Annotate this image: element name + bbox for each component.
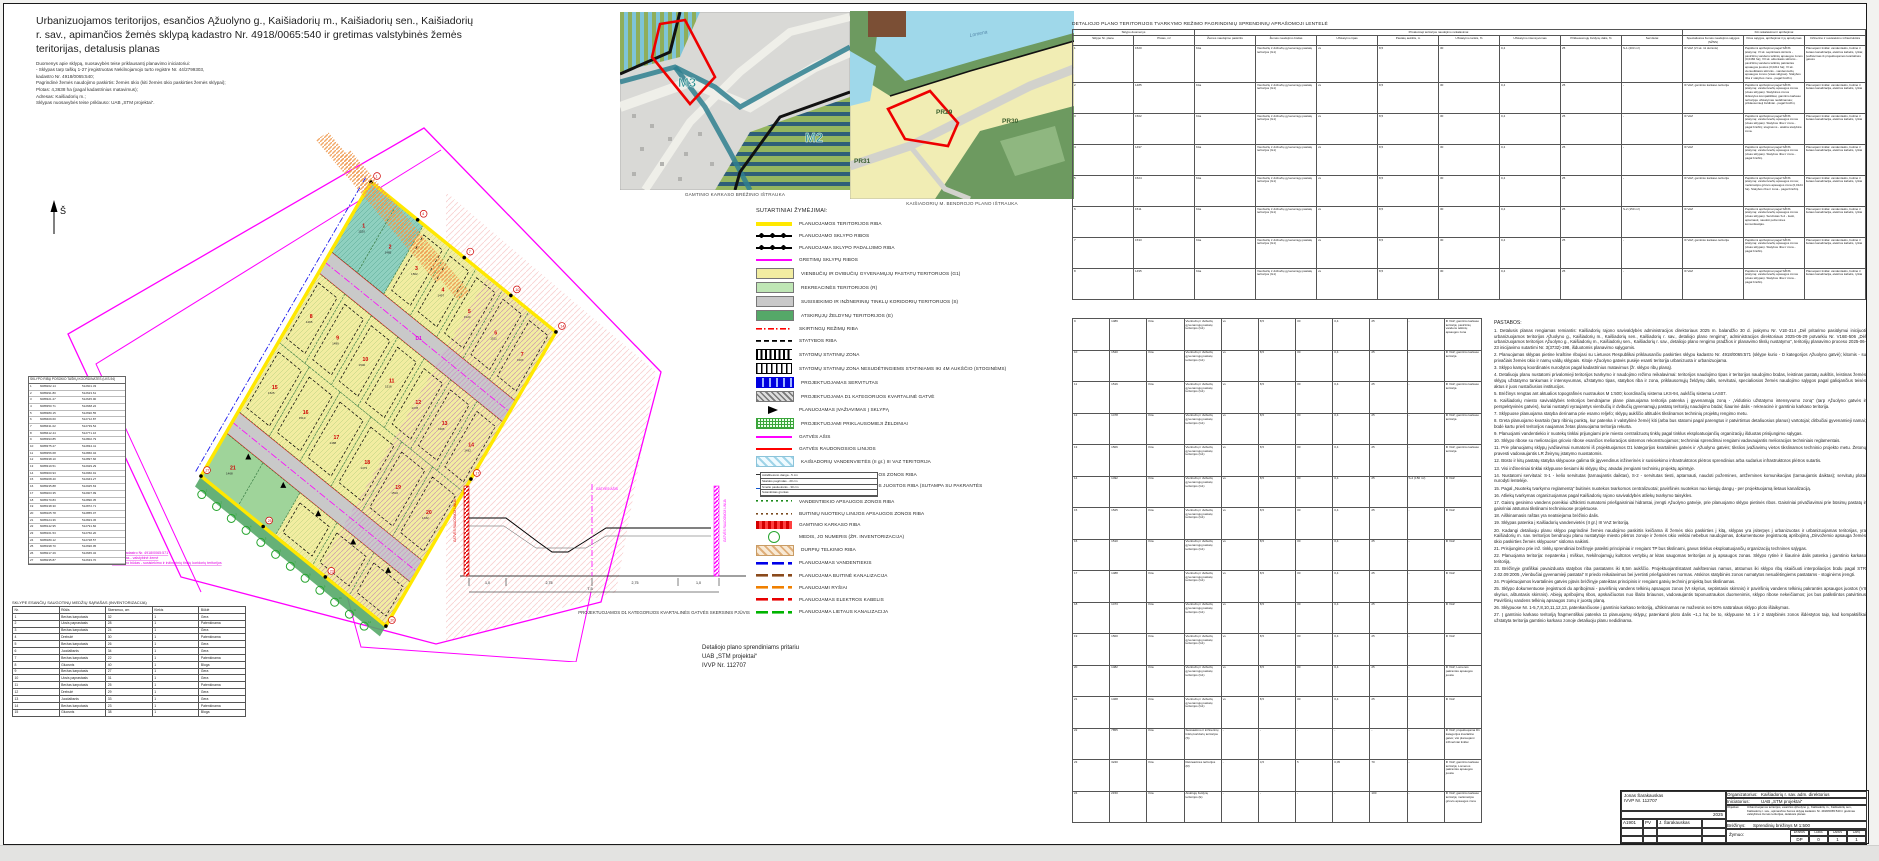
cell: 19 [1073, 634, 1110, 666]
cell: 8,5 [1258, 476, 1295, 508]
note-item: 6. Kaišiadorių miesto savivaldybės terit… [1494, 398, 1866, 409]
cell: - [1296, 728, 1333, 760]
cell: Kita [1195, 46, 1256, 82]
legend-swatch [756, 310, 794, 321]
coordinates-row: 4 6088350.71 512668.22 [29, 404, 125, 411]
cell: 1492 [1110, 476, 1147, 508]
cell: III VAZ; gamtinio karkaso teritorija [1444, 382, 1481, 414]
point-number: 1 [30, 384, 40, 390]
cell: Kita [1147, 760, 1184, 792]
signature-row: A1901 PV J. Šarakauskas [1621, 819, 1726, 828]
north-arrow: Š [51, 200, 67, 234]
note-item: 1. Detalusis planas rengiamas remiantis:… [1494, 328, 1866, 351]
cell: Kita [1147, 634, 1184, 666]
note-item: 17. Gaisrų gesinimo vandens poreikiui už… [1494, 500, 1866, 511]
point-x: 6088198.70 [40, 544, 82, 550]
label-m3: M3 [678, 75, 696, 90]
cell: Beržas karpotasis [59, 641, 106, 648]
cell: 3 [13, 627, 60, 634]
section-dimensions: 1,02,752,751,0 [469, 578, 719, 586]
left-redline-label: GATVĖS RAUDONOJI LINIJA [452, 498, 457, 542]
point-y: 512623.61 [82, 391, 122, 397]
cell: Kita [1195, 206, 1256, 237]
cell: 1 [152, 675, 199, 682]
cell: 1506 [1110, 445, 1147, 477]
legend-item: VIENBUČIŲ IR DVIBUČIŲ GYVENAMŲJŲ PASTATŲ… [756, 268, 1008, 279]
cell: III VAZ [1683, 268, 1744, 299]
cell: 30 [1296, 476, 1333, 508]
cell: Vienbučių ir dvibučių gyvenamųjų pastatų… [1184, 382, 1221, 414]
cell: 0,4 [1500, 113, 1561, 144]
drawing-label: Brėžinys: [1727, 823, 1753, 828]
cell: III VAZ; gamtinio karkaso teritorija; Lo… [1444, 760, 1481, 792]
inset-caption-karkasas: GAMTINIO KARKASO BRĖŽINIO IŠTRAUKA [620, 192, 850, 197]
point-y: 512943.27 [82, 477, 122, 483]
cell: 0,05 [1333, 760, 1370, 792]
street-axis-label: GATVĖS AŠIS [596, 486, 619, 491]
horizontal-scrollbar[interactable] [0, 845, 1879, 861]
coordinates-row: 5 6088380.15 512690.55 [29, 411, 125, 418]
point-x: 6088235.88 [40, 484, 82, 490]
cell: 30 [1439, 268, 1500, 299]
cell: 0,4 [1500, 268, 1561, 299]
point-number: 7 [30, 424, 40, 430]
note-item: 25. Sklypo dokumentuose įregistruoti du … [1494, 586, 1866, 603]
header-cell: Pastatų aukštis, m [1378, 36, 1439, 46]
point-number: 2 [30, 391, 40, 397]
table-row: 71533KitaVienbučių ir dvibučių gyvenamųj… [1073, 237, 1866, 268]
year-cell: 2025 [1621, 811, 1726, 819]
point-number: 19 [30, 504, 40, 510]
cell: Gera [199, 689, 246, 696]
cell: III VAZ; gamtinio karkaso teritorija [1683, 237, 1744, 268]
brown-zone [868, 11, 906, 37]
cell: vs [1221, 571, 1258, 603]
legend-item: STATOMŲ STATINIŲ ZONA NESUDĖTINGIEMS STA… [756, 363, 1008, 374]
cell: vs [1221, 476, 1258, 508]
cell: - [1221, 760, 1258, 792]
legend-item: PLANUOJAMAS ĮVAŽIAVIMAS Į SKLYPĄ [756, 406, 1008, 415]
cell: III VAZ [1444, 697, 1481, 729]
cell: Vienbučių ir dvibučių gyvenamųjų pastatų… [1184, 571, 1221, 603]
cell: - [1622, 113, 1683, 144]
cell: 7855 [1110, 728, 1147, 760]
cell: Gluosnis [59, 709, 106, 716]
cell: 25 [1370, 445, 1407, 477]
legend-item: SKIRTINGŲ REŽIMŲ RIBA [756, 325, 1008, 334]
cell: 40 [106, 661, 153, 668]
table-row: 21485KitaVienbučių ir dvibučių gyvenamųj… [1073, 82, 1866, 113]
legend-item: PROJEKTUOJAMA D1 KATEGORIJOS KVARTALINĖ … [756, 391, 1008, 402]
point-y: 512872.71 [82, 504, 122, 510]
point-y: 512802.79 [82, 437, 122, 443]
point-x: 6088291.80 [40, 391, 82, 397]
legend-swatch [756, 444, 792, 453]
cell: 22 [106, 654, 153, 661]
point-y: 512855.07 [82, 511, 122, 517]
cell: 4 [1073, 144, 1134, 175]
cell: 1 [152, 627, 199, 634]
cell: 0,4 [1500, 237, 1561, 268]
cert-number: A1901 [1621, 819, 1643, 828]
trees-table-title: SKLYPE ESANČIŲ SAUGOTINŲ MEDŽIŲ SĄRAŠAS … [12, 600, 248, 605]
cell: vs [1317, 268, 1378, 299]
coordinates-row: 26 6088217.29 512665.32 [29, 551, 125, 558]
point-y: 512760.20 [82, 531, 122, 537]
table-row: 211468KitaVienbučių ir dvibučių gyvenamų… [1073, 697, 1482, 729]
cell: 15 [13, 709, 60, 716]
note-item: 20. Kadangi detaliuoju planu sklypo pagr… [1494, 528, 1866, 545]
point-number: 5 [30, 411, 40, 417]
cell: Kita [1147, 728, 1184, 760]
cell: 0,4 [1333, 476, 1370, 508]
cell: vs [1317, 46, 1378, 82]
cell: 27 [106, 668, 153, 675]
initiator-row: Iniciatorius: UAB „STM projektai“ [1726, 798, 1867, 805]
svg-text:20: 20 [390, 618, 394, 622]
cell: 1495 [1134, 268, 1195, 299]
cell: Papildomi apribojimai pagal SŽNS įstatym… [1744, 175, 1805, 206]
table-row: 7Beržas karpotasis221Patenkinama [13, 654, 246, 661]
cell: Kita [1147, 571, 1184, 603]
point-x: 6088124.36 [40, 518, 82, 524]
cell: 25 [1370, 382, 1407, 414]
legend-item: PLANUOJAMO SKLYPO RIBOS [756, 231, 1008, 240]
cell: Kita [1195, 268, 1256, 299]
signer-name: J. Šarakauskas [1657, 819, 1702, 828]
notes-title: PASTABOS: [1494, 320, 1866, 326]
note-item: 4. Detaliuoju planu nustatomi privalomie… [1494, 372, 1866, 389]
coordinates-row: 13 6088319.51 512929.29 [29, 464, 125, 471]
red-line-marker-left [464, 486, 469, 576]
cell: III VAZ; Lomenos pakrantės apsaugos juos… [1444, 665, 1481, 697]
coordinates-row: 17 6088203.35 512907.99 [29, 491, 125, 498]
cell: vs [1317, 237, 1378, 268]
site-data-line: Sklypas nuosavybės teise priklauso: UAB … [36, 100, 476, 107]
point-x: 6088321.27 [40, 397, 82, 403]
cell: Planuojami tinklai: vandentiekis, buitin… [1805, 82, 1866, 113]
cell: Kita [1195, 237, 1256, 268]
point-number: 10 [30, 444, 40, 450]
coordinates-row: 7 6088431.02 512739.54 [29, 424, 125, 431]
point-number: 16 [30, 484, 40, 490]
table-row: 12Drebulė291Gera [13, 689, 246, 696]
table-row: 101540KitaVienbučių ir dvibučių gyvenamų… [1073, 350, 1482, 382]
cell: 30 [1296, 571, 1333, 603]
cell: 4,5 [1258, 760, 1295, 792]
legend-item: PLANUOJAMA SKLYPO PADALIJIMO RIBA [756, 243, 1008, 252]
site-data-line: kadastro Nr. 4918/0065:540; [36, 74, 476, 81]
cell: 1500 [1110, 634, 1147, 666]
cell: 8,5 [1258, 508, 1295, 540]
svg-text:10: 10 [515, 288, 519, 292]
cell: 13 [1073, 445, 1110, 477]
point-x: 6088180.12 [40, 538, 82, 544]
site-data-line: Plotas: 4,3638 ha (pagal kadastrinius ma… [36, 87, 476, 94]
point-x: 6088161.53 [40, 531, 82, 537]
cell: III VAZ; projektuojama D1 kategorijos kv… [1444, 728, 1481, 760]
dim-total-value: 7,5 [587, 586, 593, 591]
lapas-value: 1 [1828, 836, 1847, 843]
coordinates-row: 15 6088268.40 512943.27 [29, 477, 125, 484]
header-cell: Plotas, m² [1134, 36, 1195, 46]
cell: 25 [1370, 602, 1407, 634]
legend-item-label: PLANUOJAMOS TERITORIJOS RIBA [799, 221, 882, 226]
cell: 1525 [1110, 508, 1147, 540]
coordinates-row: 2 6088291.80 512623.61 [29, 391, 125, 398]
cell: Kita [1147, 382, 1184, 414]
cell: Vienbučių ir dvibučių gyvenamųjų pastatų… [1184, 476, 1221, 508]
approval-block: Detaliojo plano sprendiniams pritariuUAB… [702, 644, 942, 671]
cell: 30 [1439, 82, 1500, 113]
cell: Vienbučių ir dvibučių gyvenamųjų pastatų… [1184, 445, 1221, 477]
point-y: 512890.35 [82, 498, 122, 504]
legend-swatch [756, 432, 792, 441]
table-row: 201482KitaVienbučių ir dvibučių gyvenamų… [1073, 665, 1482, 697]
cell: - [1407, 319, 1444, 351]
cell: 100 [1370, 791, 1407, 823]
title-block-right: Organizatorius: Kaišiadorių r. sav. adm.… [1726, 791, 1867, 843]
coordinates-row: 19 6088138.30 512872.71 [29, 504, 125, 511]
legend-item-label: GATVĖS RAUDONOSIOS LINIJOS [799, 446, 876, 451]
coordinates-row: 14 6088300.93 512960.91 [29, 471, 125, 478]
coordinates-row: 18 6088170.83 512890.35 [29, 498, 125, 505]
cell: Vienbučių ir dvibučių gyvenamųjų pastatų… [1256, 144, 1317, 175]
point-y: 512712.87 [82, 417, 122, 423]
cell: 8,5 [1378, 46, 1439, 82]
cell: Vienbučių ir dvibučių gyvenamųjų pastatų… [1256, 206, 1317, 237]
cell: vs [1221, 539, 1258, 571]
cell: - [1622, 144, 1683, 175]
cell: Beržas karpotasis [59, 682, 106, 689]
cell: III VAZ [1444, 508, 1481, 540]
legend-title: SUTARTINIAI ŽYMĖJIMAI: [756, 208, 1008, 214]
cell: Vienbučių ir dvibučių gyvenamųjų pastatų… [1256, 82, 1317, 113]
cell: Patenkinama [199, 682, 246, 689]
point-x: 6088105.78 [40, 511, 82, 517]
trees-header-cell: Kiekis [152, 607, 199, 614]
point-number: 3 [30, 397, 40, 403]
point-x: 6088338.10 [40, 457, 82, 463]
point-y: 512897.66 [82, 457, 122, 463]
table-row: 8Gluosnis401Bloga [13, 661, 246, 668]
coordinates-row: 23 6088161.53 512760.20 [29, 531, 125, 538]
legend-swatch [756, 219, 792, 228]
cell: 25 [1370, 539, 1407, 571]
svg-text:1497: 1497 [437, 294, 444, 298]
cell: vs [1317, 144, 1378, 175]
cell: 1 [152, 661, 199, 668]
cell: - [1407, 445, 1444, 477]
laida-value: 0 [1809, 836, 1828, 843]
cell: 20 [1073, 665, 1110, 697]
cell: Atskirųjų želdynų teritorijos (E) [1184, 791, 1221, 823]
cell: vs [1221, 634, 1258, 666]
cell: 25 [1561, 144, 1622, 175]
cell: 11 [13, 682, 60, 689]
cell: 3240 [1110, 760, 1147, 792]
cell: 25 [1561, 268, 1622, 299]
cell: 8,5 [1378, 268, 1439, 299]
title-block-left: Jonas Šarakauskas IVVP Nr. 112707 2025 A… [1621, 791, 1726, 843]
cell: III VAZ [1683, 144, 1744, 175]
cell: - [1407, 665, 1444, 697]
label-m2: M2 [805, 130, 823, 145]
cell: 30 [1439, 237, 1500, 268]
header-cell: Kitos sąlygos, apribojimai ir jų aprašym… [1744, 36, 1805, 46]
cell: 1468 [1110, 697, 1147, 729]
right-redline-label: GATVĖS RAUDONOJI LINIJA [722, 498, 727, 542]
point-y: 512696.95 [82, 544, 122, 550]
cell: Vienbučių ir dvibučių gyvenamųjų pastatų… [1256, 268, 1317, 299]
initiator-label: Iniciatorius: [1727, 799, 1761, 804]
table-row: 227855KitaSusisiekimo ir inžinerinių tin… [1073, 728, 1482, 760]
note-item: 21. Prisijungimo prie inž. tinklų sprend… [1494, 546, 1866, 552]
point-number: 22 [30, 524, 40, 530]
cell: III VAZ [1444, 602, 1481, 634]
cell: Papildomi apribojimai pagal SŽNS įstatym… [1744, 46, 1805, 82]
cell: Papildomi apribojimai pagal SŽNS įstatym… [1744, 82, 1805, 113]
cell: Vienbučių ir dvibučių gyvenamųjų pastatų… [1184, 508, 1221, 540]
lapu-value: 1 [1847, 836, 1866, 843]
point-number: 6 [30, 417, 40, 423]
cell: - [1333, 728, 1370, 760]
cell: Vienbučių ir dvibučių gyvenamųjų pastatų… [1184, 350, 1221, 382]
cell: 0,4 [1333, 634, 1370, 666]
coordinates-row: 8 6088412.44 512771.16 [29, 431, 125, 438]
note-item: 16. Atliekų tvarkymas organizuojamas pag… [1494, 493, 1866, 499]
cell: 33 [106, 695, 153, 702]
table-row: 6Juodalksnis341Gera [13, 648, 246, 655]
header-cell: Inžinerinė ir susisiekimo infrastruktūra [1805, 36, 1866, 46]
table-row: 9Beržas karpotasis271Gera [13, 668, 246, 675]
cell: 8,5 [1378, 175, 1439, 206]
cell: 1485 [1134, 82, 1195, 113]
cell: 25 [1561, 113, 1622, 144]
note-item: 13. Visi inžineriniai tinklai sklypuose … [1494, 466, 1866, 472]
svg-text:D1: D1 [415, 336, 422, 342]
drawing-row: Brėžinys: Sprendinių brėžinys M 1:500 [1726, 821, 1867, 829]
coordinates-row: 25 6088198.70 512696.95 [29, 544, 125, 551]
point-x: 6088409.60 [40, 417, 82, 423]
legend-swatch [756, 349, 792, 360]
cell: 7 [1073, 237, 1134, 268]
cell: Kita [1147, 350, 1184, 382]
note-item: 24. Projektuojamos kvartalinės gatvės pj… [1494, 579, 1866, 585]
zymuo-row: Žymuo: ETAPAS LAIDA LAPAS LAPŲ DP 0 1 1 [1726, 829, 1867, 843]
legend-item-label: ATSKIRŲJŲ ŽELDYNŲ TERITORIJOS (E) [801, 313, 893, 318]
cell: - [1258, 791, 1295, 823]
point-number: 9 [30, 437, 40, 443]
point-y: 512791.82 [82, 524, 122, 530]
point-y: 512823.45 [82, 518, 122, 524]
cell: 1 [152, 654, 199, 661]
table-row: 61511KitaVienbučių ir dvibučių gyvenamųj… [1073, 206, 1866, 237]
cell: Gluosnis [59, 661, 106, 668]
point-x: 6088170.83 [40, 498, 82, 504]
cell: - [1296, 791, 1333, 823]
cell: Vienbučių ir dvibučių gyvenamųjų pastatų… [1184, 539, 1221, 571]
cell: 2 [1073, 82, 1134, 113]
coordinates-table: SKLYPO RIBŲ POSŪKIO TAŠKŲ KOORDINATĖS (L… [28, 376, 126, 565]
cell: - [1407, 382, 1444, 414]
cell: 25 [106, 682, 153, 689]
main-table: Sklypo duomenysPrivalomieji teritorijos … [1072, 29, 1866, 300]
legend-swatch [756, 363, 792, 374]
cell: 8 [13, 661, 60, 668]
cell: 1488 [1110, 571, 1147, 603]
cell: 8,5 [1258, 445, 1295, 477]
cell: - [1407, 791, 1444, 823]
coordinates-row: 27 6088235.87 512633.70 [29, 558, 125, 565]
legend-item-label: REKREACINĖS TERITORIJOS (R) [801, 285, 877, 290]
point-number: 27 [30, 558, 40, 564]
table-row: 10Uosis paprastasis311Gera [13, 675, 246, 682]
cell: 12 [1073, 413, 1110, 445]
cell: Papildomi apribojimai pagal SŽNS įstatym… [1744, 268, 1805, 299]
cell: - [1407, 508, 1444, 540]
cell: Planuojami tinklai: vandentiekis, buitin… [1805, 237, 1866, 268]
cell: 8,5 [1258, 382, 1295, 414]
cell: Juodalksnis [59, 648, 106, 655]
empty-row [1621, 828, 1726, 836]
point-number: 8 [30, 431, 40, 437]
cell: 1 [152, 668, 199, 675]
point-x: 6088262.14 [40, 384, 82, 390]
cell: 0,4 [1500, 82, 1561, 113]
table-header-row: Sklypo Nr. planePlotas, m²Žemės naudojim… [1073, 36, 1866, 46]
stamp-grid: ETAPAS LAIDA LAPAS LAPŲ DP 0 1 1 [1790, 830, 1866, 842]
cell: S-2 (150 m²) [1622, 206, 1683, 237]
cell: 15 [1073, 508, 1110, 540]
cell: 1 [152, 634, 199, 641]
table-row: 81495KitaVienbučių ir dvibučių gyvenamųj… [1073, 268, 1866, 299]
coordinates-row: 11 6088356.68 512866.04 [29, 451, 125, 458]
cell: Bloga [199, 709, 246, 716]
coordinates-row: 9 6088393.85 512802.79 [29, 437, 125, 444]
cell: 7 [13, 654, 60, 661]
cell: 30 [1296, 697, 1333, 729]
empty-row-2 [1621, 836, 1726, 844]
cell: vs [1317, 206, 1378, 237]
svg-text:1489: 1489 [332, 342, 339, 346]
cell: - [1407, 602, 1444, 634]
legend-item: GATVĖS RAUDONOSIOS LINIJOS [756, 444, 1008, 453]
cell: 0,4 [1333, 319, 1370, 351]
legend-swatch [756, 391, 794, 402]
svg-text:1,0: 1,0 [485, 581, 490, 585]
cell: Beržas karpotasis [59, 668, 106, 675]
cell: Bloga [199, 661, 246, 668]
table-row: 14Beržas karpotasis231Patenkinama [13, 702, 246, 709]
cell: Vienbučių ir dvibučių gyvenamųjų pastatų… [1184, 697, 1221, 729]
svg-text:25: 25 [268, 519, 272, 523]
cell: 0,4 [1333, 508, 1370, 540]
table-row: 11520KitaVienbučių ir dvibučių gyvenamųj… [1073, 46, 1866, 82]
cell: 1 [1073, 46, 1134, 82]
cell: Kita [1147, 602, 1184, 634]
cell: Papildomi apribojimai pagal SŽNS įstatym… [1744, 113, 1805, 144]
svg-text:1468: 1468 [226, 471, 233, 475]
red-line-marker-right [714, 486, 719, 576]
cell: 0,4 [1333, 413, 1370, 445]
cell: 30 [1439, 175, 1500, 206]
cell: III VAZ (VI sk. 11 skirsnis) [1683, 46, 1744, 82]
table-row: 1Beržas karpotasis321Gera [13, 613, 246, 620]
cell: 1 [152, 702, 199, 709]
cell: 30 [1296, 602, 1333, 634]
site-data-line: Adresas: Kaišiadorių m.; [36, 94, 476, 101]
